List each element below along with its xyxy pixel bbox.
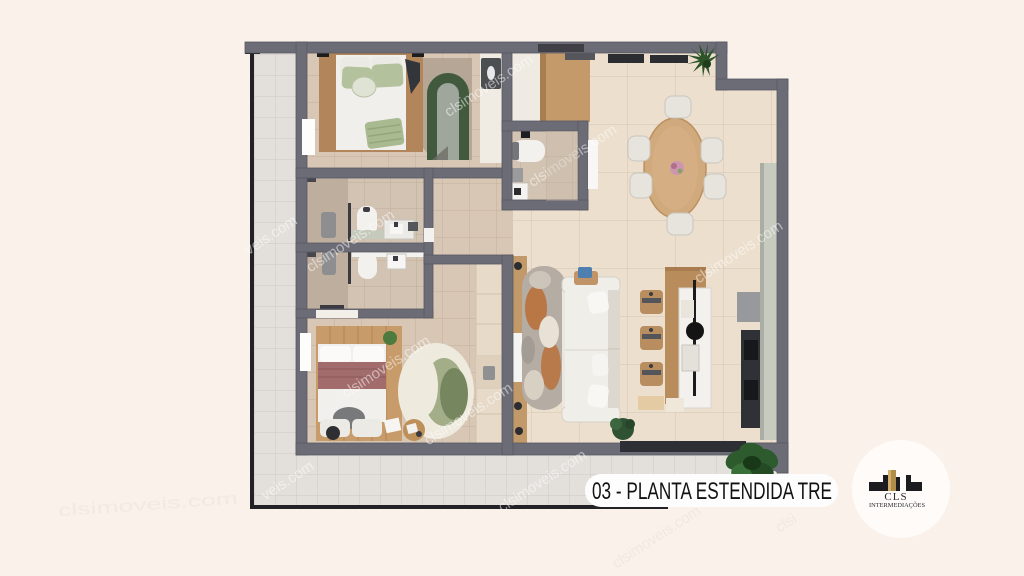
svg-text:INTERMEDIAÇÕES: INTERMEDIAÇÕES: [869, 501, 925, 509]
svg-text:03 - PLANTA ESTENDIDA TRE: 03 - PLANTA ESTENDIDA TRE: [592, 478, 832, 505]
